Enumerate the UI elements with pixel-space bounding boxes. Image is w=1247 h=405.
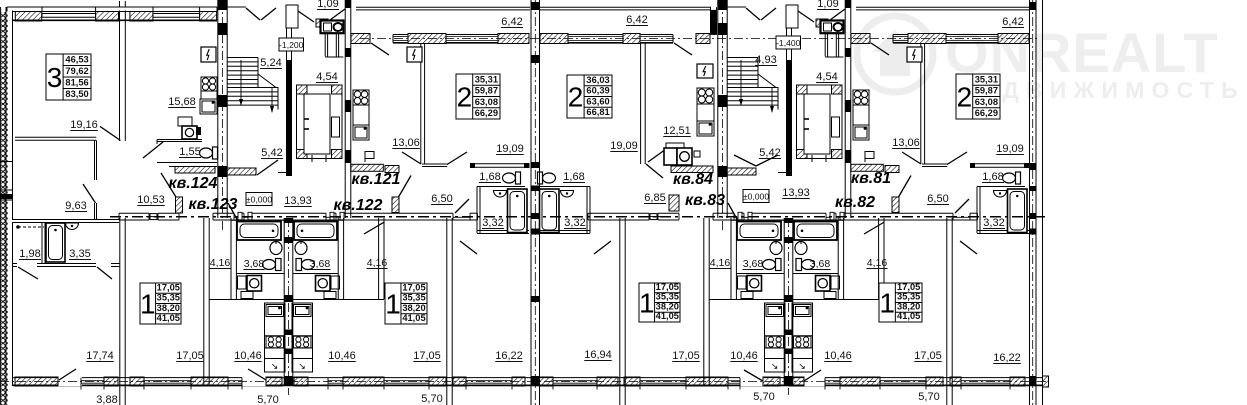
svg-text:кв.81: кв.81 [851,170,891,187]
svg-text:6,50: 6,50 [431,193,452,205]
svg-text:3,68: 3,68 [310,258,331,270]
svg-text:15,68: 15,68 [168,96,196,108]
svg-text:66,29: 66,29 [475,108,498,118]
svg-text:10,53: 10,53 [137,194,165,206]
svg-text:46,53: 46,53 [65,55,88,65]
svg-text:↘: ↘ [771,361,779,371]
svg-text:-1,200: -1,200 [279,40,304,50]
svg-text:кв.123: кв.123 [189,196,238,213]
svg-text:13,06: 13,06 [892,137,920,149]
svg-text:19,09: 19,09 [496,143,524,155]
svg-text:16,22: 16,22 [993,352,1021,364]
svg-text:3,32: 3,32 [983,217,1004,229]
svg-text:10,46: 10,46 [730,350,758,362]
svg-text:41,05: 41,05 [157,313,180,323]
svg-text:81,56: 81,56 [65,78,88,88]
svg-text:10,46: 10,46 [328,350,356,362]
svg-text:10,46: 10,46 [824,350,852,362]
svg-text:3,68: 3,68 [743,258,764,270]
svg-text:19,09: 19,09 [996,143,1024,155]
svg-text:59,87: 59,87 [475,86,498,96]
svg-text:35,35: 35,35 [402,293,425,303]
svg-text:38,20: 38,20 [402,303,425,313]
svg-text:2: 2 [568,82,584,113]
svg-text:17,05: 17,05 [914,350,942,362]
svg-text:3,35: 3,35 [69,248,90,260]
svg-text:4,93: 4,93 [755,54,776,66]
svg-text:17,74: 17,74 [86,350,114,362]
svg-text:1,09: 1,09 [817,0,838,10]
svg-text:63,08: 63,08 [975,97,998,107]
svg-text:кв.83: кв.83 [685,192,725,209]
svg-text:9,63: 9,63 [65,200,86,212]
svg-text:6,50: 6,50 [927,193,948,205]
svg-text:38,20: 38,20 [656,301,679,311]
svg-text:1,68: 1,68 [982,171,1003,183]
svg-text:5,42: 5,42 [759,147,780,159]
svg-text:3,88: 3,88 [96,394,117,405]
svg-text:17,05: 17,05 [656,282,679,292]
svg-text:35,35: 35,35 [656,292,679,302]
svg-text:6,42: 6,42 [501,16,522,28]
svg-text:1,55: 1,55 [179,146,200,158]
svg-text:5,24: 5,24 [260,57,281,69]
svg-text:38,20: 38,20 [897,301,920,311]
svg-text:60,39: 60,39 [586,86,609,96]
svg-text:4,16: 4,16 [710,257,731,269]
svg-text:17,05: 17,05 [176,350,204,362]
svg-text:59,87: 59,87 [975,86,998,96]
svg-text:кв.121: кв.121 [352,171,401,188]
svg-text:63,08: 63,08 [475,97,498,107]
svg-text:35,35: 35,35 [157,293,180,303]
svg-text:83,50: 83,50 [65,89,88,99]
svg-text:12,51: 12,51 [663,125,691,137]
svg-text:35,31: 35,31 [475,74,498,84]
svg-text:1,68: 1,68 [479,171,500,183]
svg-text:36,03: 36,03 [586,75,609,85]
svg-text:3,32: 3,32 [564,217,585,229]
svg-text:38,20: 38,20 [157,303,180,313]
svg-text:1: 1 [879,288,895,319]
svg-text:±0,000: ±0,000 [743,191,769,201]
svg-text:19,16: 19,16 [70,119,98,131]
svg-text:41,05: 41,05 [897,311,920,321]
svg-text:41,05: 41,05 [656,311,679,321]
svg-text:13,93: 13,93 [284,195,312,207]
svg-text:13,93: 13,93 [782,187,810,199]
svg-text:-1,400: -1,400 [776,38,801,48]
svg-text:17,05: 17,05 [402,282,425,292]
svg-text:10,46: 10,46 [234,350,262,362]
svg-text:↘: ↘ [798,361,806,371]
svg-text:кв.124: кв.124 [169,175,218,192]
svg-text:16,94: 16,94 [584,349,612,361]
svg-text:5,70: 5,70 [257,394,278,405]
svg-text:4,16: 4,16 [210,257,231,269]
svg-text:↘: ↘ [298,361,306,371]
svg-text:41,05: 41,05 [402,313,425,323]
svg-text:1: 1 [385,289,401,320]
svg-text:2: 2 [457,82,473,113]
svg-text:63,60: 63,60 [586,96,609,106]
svg-text:35,35: 35,35 [897,292,920,302]
svg-text:кв.84: кв.84 [673,171,713,188]
svg-text:6,42: 6,42 [1002,16,1023,28]
svg-text:3,68: 3,68 [810,258,831,270]
svg-text:16,22: 16,22 [495,350,523,362]
svg-text:3: 3 [47,62,63,93]
svg-text:↘: ↘ [271,361,279,371]
svg-text:17,05: 17,05 [157,282,180,292]
svg-text:5,70: 5,70 [421,393,442,405]
svg-text:6,42: 6,42 [626,14,647,26]
svg-text:19,09: 19,09 [610,140,638,152]
svg-text:79,62: 79,62 [65,66,88,76]
svg-text:66,81: 66,81 [586,107,609,117]
svg-text:6,85: 6,85 [644,192,665,204]
svg-text:кв.82: кв.82 [835,194,875,211]
svg-text:5,70: 5,70 [753,391,774,403]
svg-text:1,98: 1,98 [19,248,40,260]
svg-text:1: 1 [639,288,655,319]
svg-text:±0,000: ±0,000 [246,194,272,204]
svg-text:кв.122: кв.122 [334,197,383,214]
svg-text:17,05: 17,05 [413,350,441,362]
svg-text:13,06: 13,06 [392,137,420,149]
svg-text:3,32: 3,32 [482,217,503,229]
svg-text:4,54: 4,54 [816,71,837,83]
svg-text:66,29: 66,29 [975,108,998,118]
svg-text:1,68: 1,68 [563,171,584,183]
svg-text:4,16: 4,16 [367,257,388,269]
svg-text:17,05: 17,05 [672,350,700,362]
svg-text:4,16: 4,16 [867,257,888,269]
svg-text:5,70: 5,70 [918,391,939,403]
svg-text:4,54: 4,54 [316,71,337,83]
svg-text:5,42: 5,42 [261,147,282,159]
svg-text:3,68: 3,68 [244,258,265,270]
svg-text:1,09: 1,09 [317,0,338,10]
svg-text:1: 1 [140,289,156,320]
svg-text:35,31: 35,31 [975,74,998,84]
svg-text:17,05: 17,05 [897,282,920,292]
svg-text:2: 2 [957,82,973,113]
